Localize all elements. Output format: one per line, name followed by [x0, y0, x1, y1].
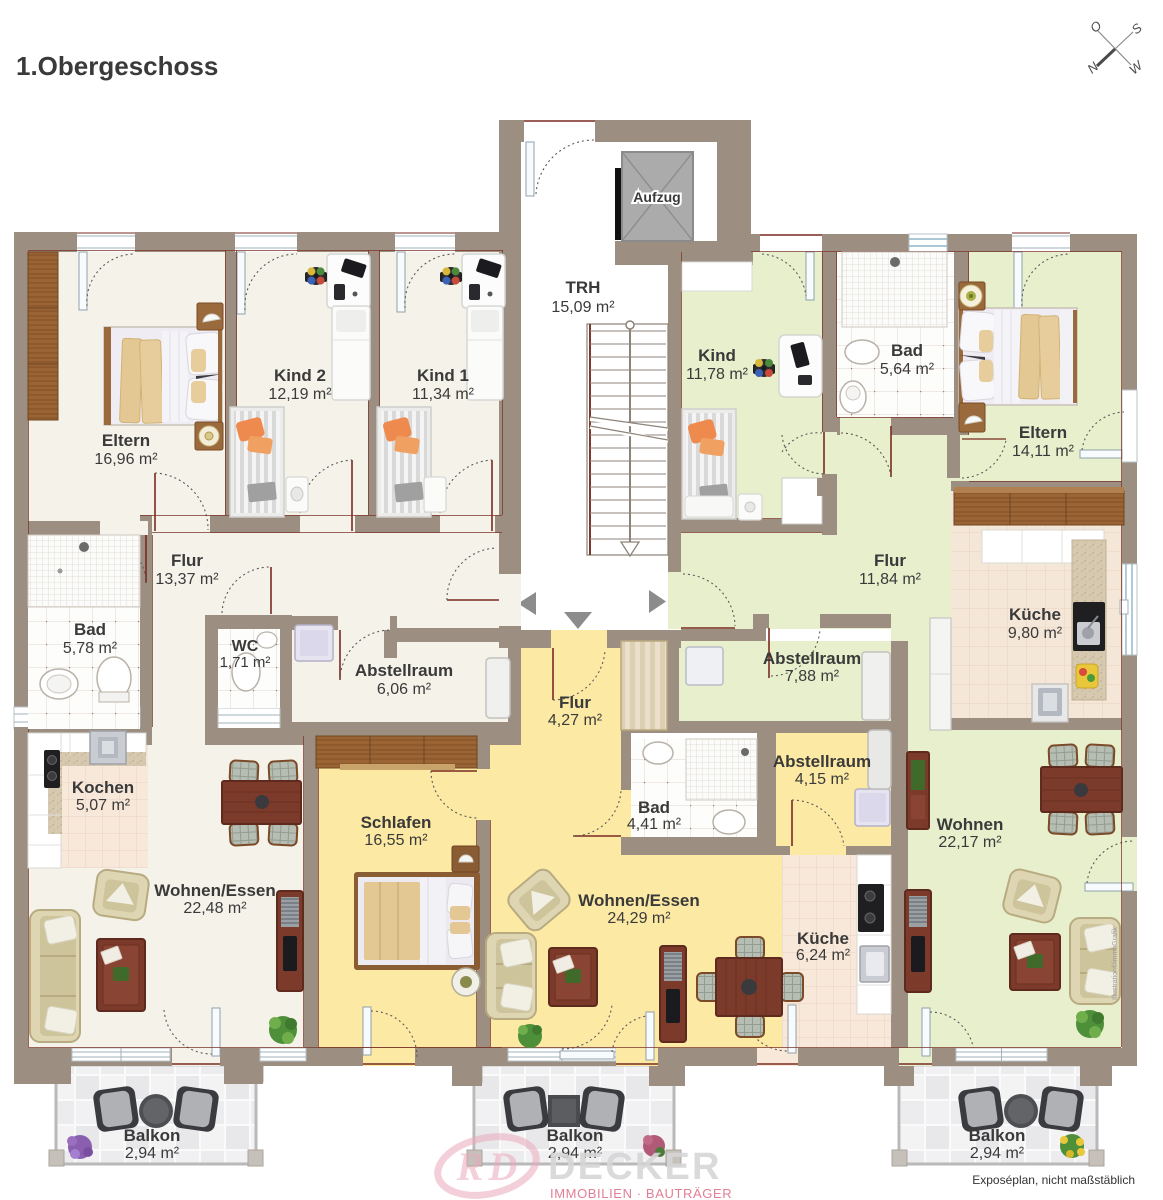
svg-text:9,80 m²: 9,80 m²	[1008, 625, 1063, 642]
svg-text:2,94 m²: 2,94 m²	[125, 1145, 180, 1162]
svg-text:Exposéplan, nicht maßstäblich: Exposéplan, nicht maßstäblich	[972, 1173, 1135, 1187]
svg-text:22,17 m²: 22,17 m²	[938, 834, 1002, 851]
svg-text:Kind: Kind	[698, 346, 736, 365]
svg-text:7,88 m²: 7,88 m²	[785, 668, 840, 685]
svg-text:Wohnen: Wohnen	[937, 815, 1004, 834]
svg-text:Bad: Bad	[74, 620, 106, 639]
svg-text:12,19 m²: 12,19 m²	[268, 386, 332, 403]
svg-text:IMMOBILIEN · BAUTRÄGER: IMMOBILIEN · BAUTRÄGER	[550, 1186, 732, 1200]
svg-text:Balkon: Balkon	[124, 1126, 181, 1145]
svg-text:Balkon: Balkon	[969, 1126, 1026, 1145]
svg-text:2,94 m²: 2,94 m²	[970, 1145, 1025, 1162]
svg-text:Kind 2: Kind 2	[274, 366, 326, 385]
svg-text:Flur: Flur	[874, 551, 906, 570]
svg-text:Bad: Bad	[638, 798, 670, 817]
svg-text:Abstellraum: Abstellraum	[773, 752, 871, 771]
svg-text:TRH: TRH	[566, 278, 601, 297]
svg-text:Balkon: Balkon	[547, 1126, 604, 1145]
svg-text:Abstellraum: Abstellraum	[763, 649, 861, 668]
svg-text:4,41 m²: 4,41 m²	[627, 816, 682, 833]
svg-text:D: D	[488, 1144, 518, 1189]
svg-text:Illustration©immoGrafik: Illustration©immoGrafik	[1111, 927, 1119, 1000]
svg-text:R: R	[456, 1144, 484, 1189]
svg-text:6,06 m²: 6,06 m²	[377, 681, 432, 698]
svg-text:24,29 m²: 24,29 m²	[607, 910, 671, 927]
svg-text:16,55 m²: 16,55 m²	[364, 832, 428, 849]
svg-text:4,15 m²: 4,15 m²	[795, 771, 850, 788]
svg-text:1,71 m²: 1,71 m²	[220, 654, 271, 671]
svg-text:5,78 m²: 5,78 m²	[63, 640, 118, 657]
svg-text:DECKER: DECKER	[548, 1146, 722, 1188]
svg-text:22,48 m²: 22,48 m²	[183, 900, 247, 917]
svg-text:16,96 m²: 16,96 m²	[94, 451, 158, 468]
svg-text:Aufzug: Aufzug	[633, 189, 680, 205]
svg-text:Eltern: Eltern	[102, 431, 150, 450]
svg-text:Kind 1: Kind 1	[417, 366, 469, 385]
svg-text:Wohnen/Essen: Wohnen/Essen	[154, 881, 276, 900]
svg-text:6,24 m²: 6,24 m²	[796, 947, 851, 964]
svg-text:14,11 m²: 14,11 m²	[1012, 443, 1075, 460]
svg-text:Abstellraum: Abstellraum	[355, 661, 453, 680]
svg-text:Flur: Flur	[171, 551, 203, 570]
svg-text:13,37 m²: 13,37 m²	[155, 571, 219, 588]
svg-text:15,09 m²: 15,09 m²	[551, 299, 615, 316]
svg-text:1.Obergeschoss: 1.Obergeschoss	[16, 51, 218, 81]
svg-text:Eltern: Eltern	[1019, 423, 1067, 442]
svg-text:Flur: Flur	[559, 693, 591, 712]
svg-text:4,27 m²: 4,27 m²	[548, 712, 603, 729]
svg-text:Bad: Bad	[891, 341, 923, 360]
svg-text:11,34 m²: 11,34 m²	[412, 386, 475, 403]
svg-text:Schlafen: Schlafen	[361, 813, 432, 832]
svg-text:WC: WC	[232, 638, 259, 655]
svg-text:5,64 m²: 5,64 m²	[880, 361, 935, 378]
svg-text:11,78 m²: 11,78 m²	[686, 366, 749, 383]
svg-text:5,07 m²: 5,07 m²	[76, 797, 131, 814]
svg-text:11,84 m²: 11,84 m²	[859, 571, 922, 588]
svg-text:Kochen: Kochen	[72, 778, 134, 797]
svg-text:Wohnen/Essen: Wohnen/Essen	[578, 891, 700, 910]
svg-text:Küche: Küche	[1009, 605, 1061, 624]
svg-text:Küche: Küche	[797, 929, 849, 948]
